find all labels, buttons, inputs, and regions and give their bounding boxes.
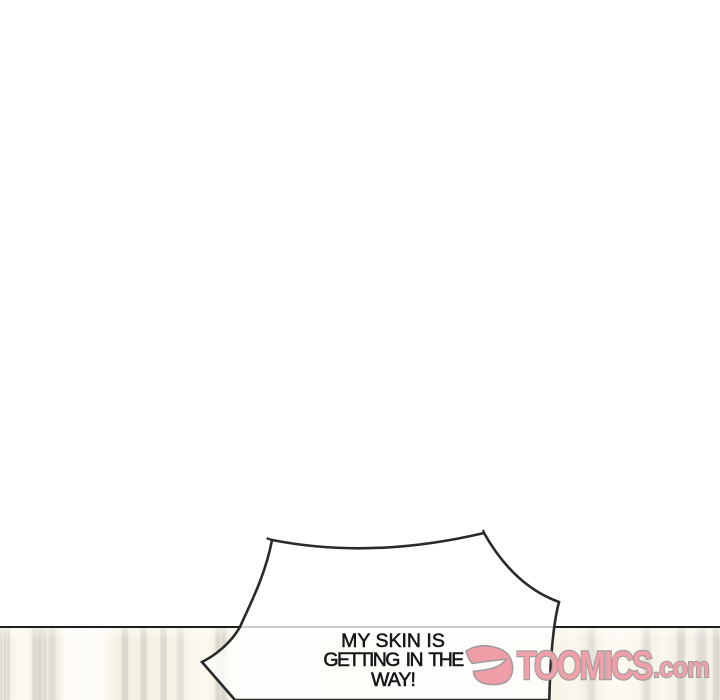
svg-text:TOOMICS: TOOMICS xyxy=(517,643,652,688)
svg-text:.com: .com xyxy=(653,650,709,683)
